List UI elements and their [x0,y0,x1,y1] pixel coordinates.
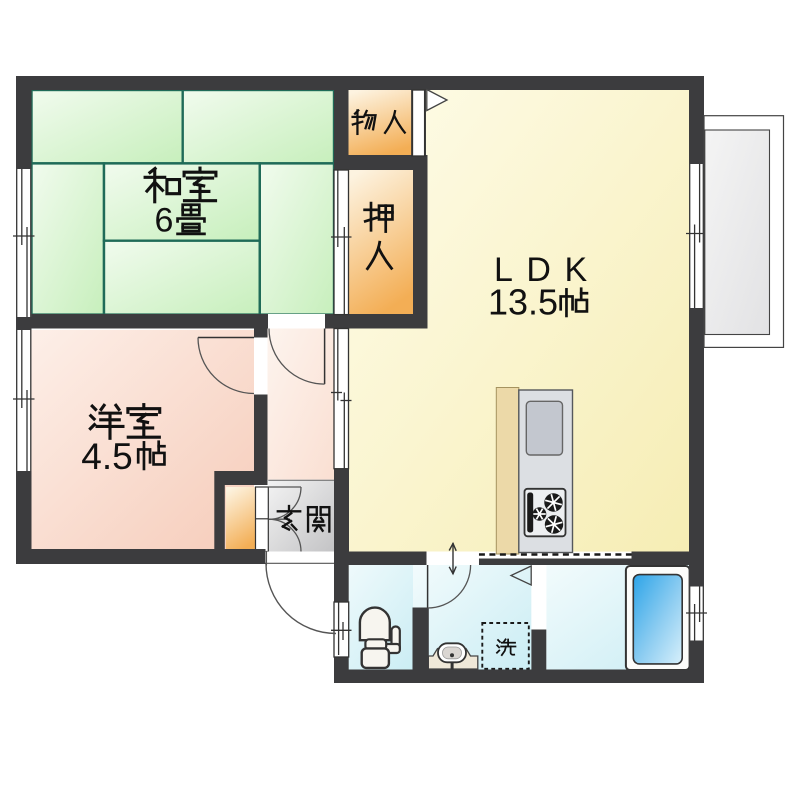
svg-text:13.5: 13.5 [488,282,558,323]
svg-text:4.5: 4.5 [81,436,132,477]
svg-text:6: 6 [155,202,174,240]
